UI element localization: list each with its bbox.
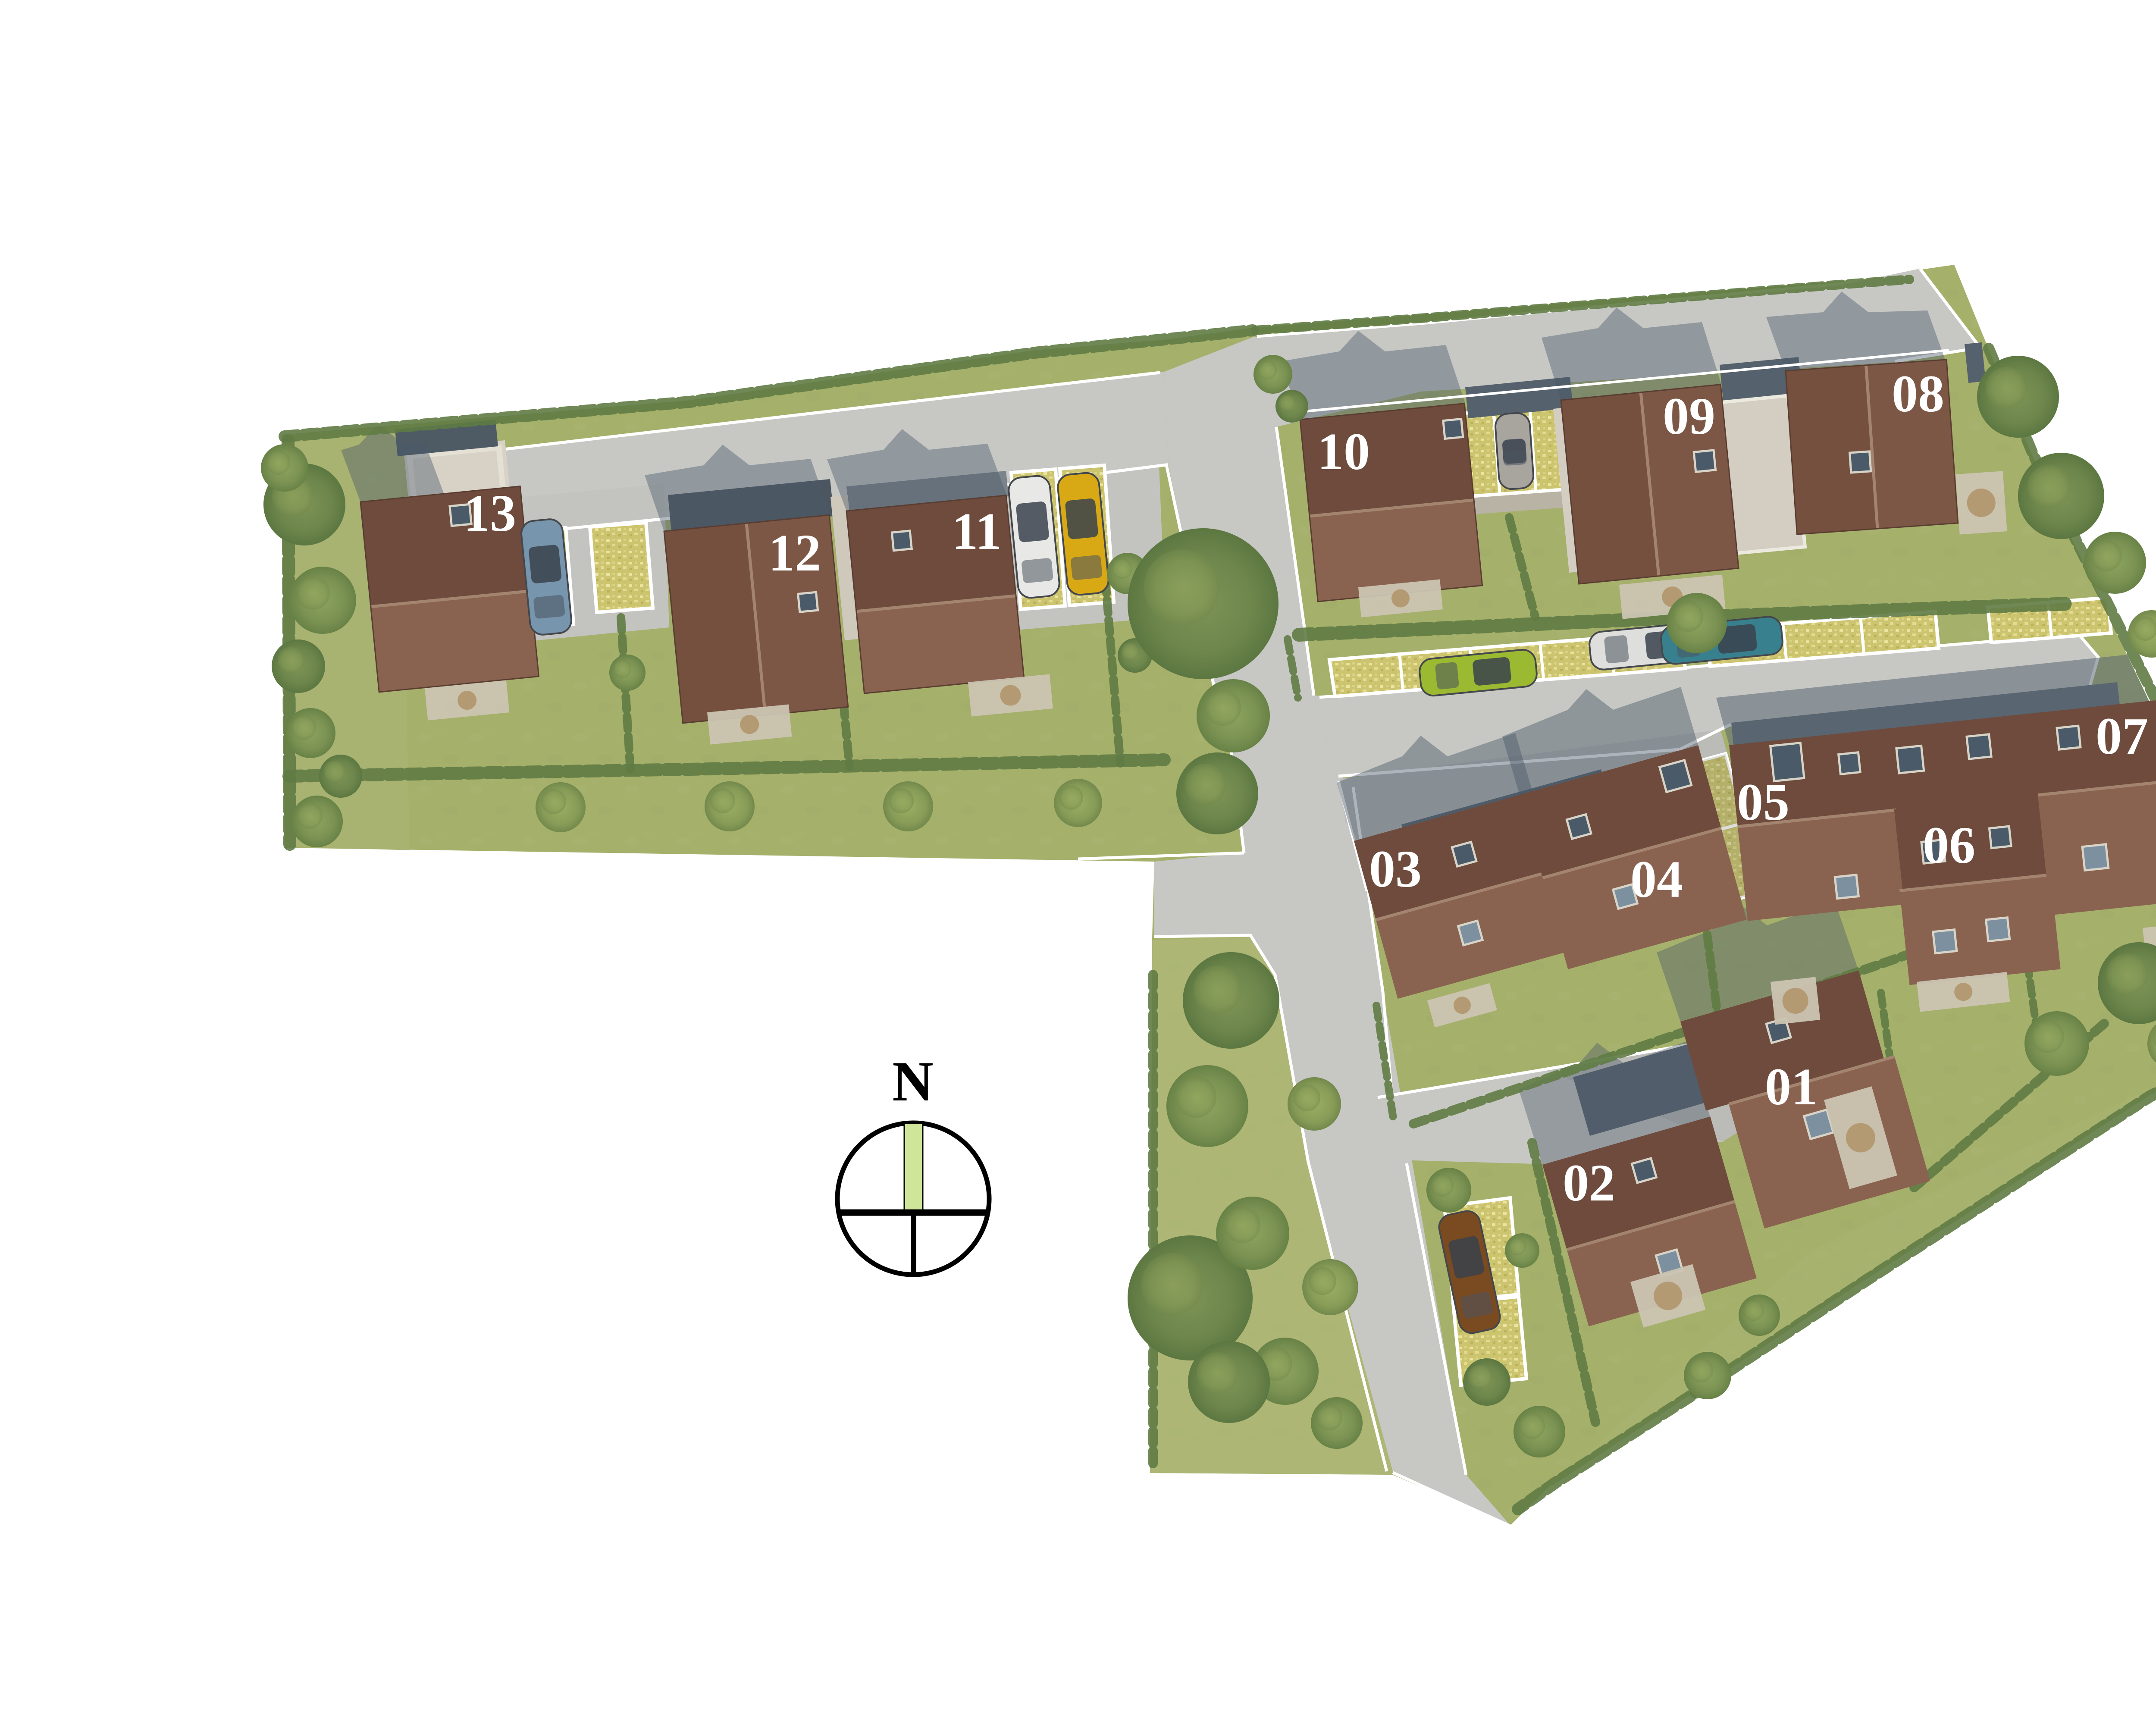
svg-text:09: 09: [1663, 387, 1715, 445]
svg-text:01: 01: [1765, 1058, 1818, 1116]
svg-text:N: N: [892, 1050, 933, 1113]
svg-text:03: 03: [1369, 840, 1422, 898]
svg-text:04: 04: [1630, 850, 1683, 909]
svg-text:07: 07: [2096, 707, 2148, 765]
svg-text:10: 10: [1317, 423, 1370, 481]
svg-text:12: 12: [768, 524, 821, 582]
svg-text:08: 08: [1892, 365, 1944, 423]
svg-text:11: 11: [952, 502, 1001, 561]
svg-text:06: 06: [1923, 816, 1975, 874]
svg-text:05: 05: [1737, 773, 1789, 831]
svg-text:13: 13: [464, 484, 516, 542]
svg-text:02: 02: [1563, 1154, 1615, 1212]
